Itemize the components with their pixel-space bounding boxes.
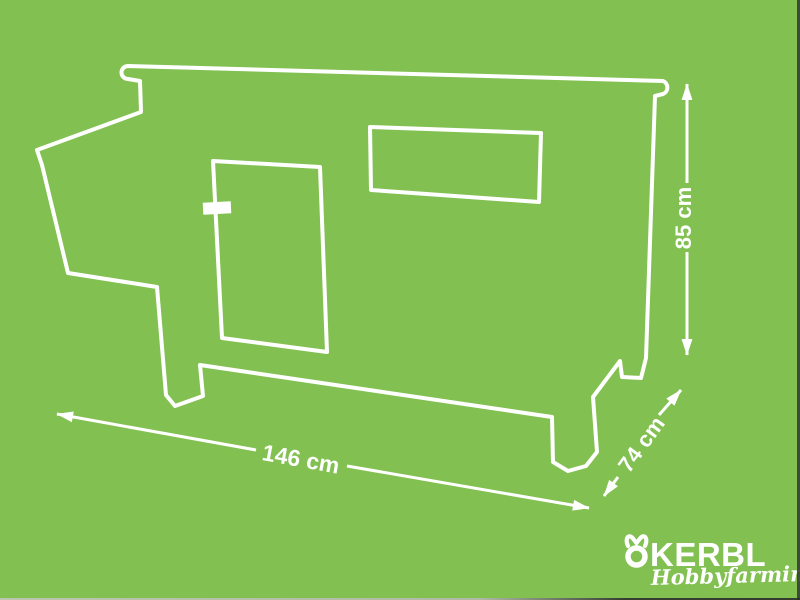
height-dimension-label: 85 cm <box>671 187 696 249</box>
background <box>0 0 800 600</box>
door-latch <box>203 201 232 214</box>
diagram-canvas: 146 cm 74 cm 85 cm KERBL Hobbyfarming <box>0 0 800 600</box>
product-dimension-diagram: 146 cm 74 cm 85 cm KERBL Hobbyfarming <box>0 0 800 600</box>
brand-tagline: Hobbyfarming <box>649 561 800 590</box>
